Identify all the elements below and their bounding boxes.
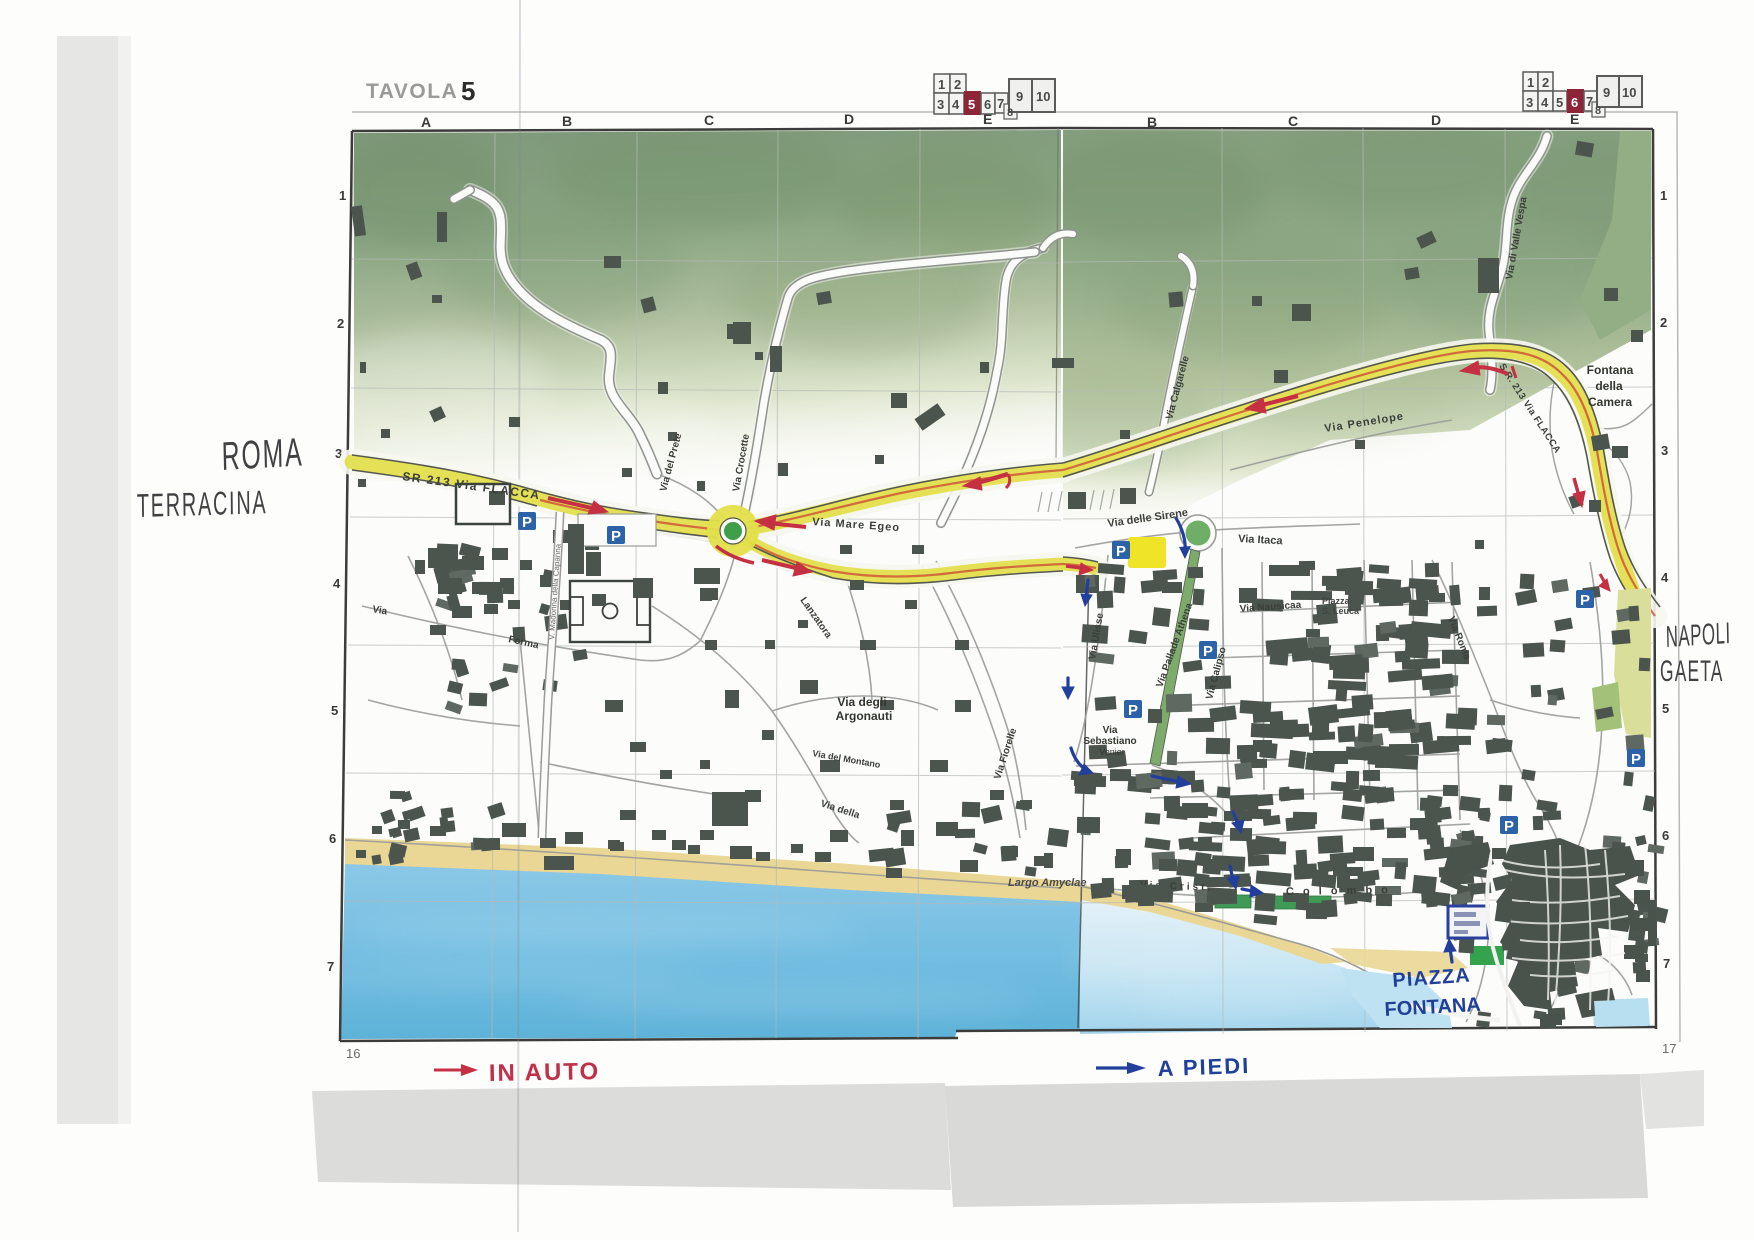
svg-text:5: 5 xyxy=(461,76,475,106)
svg-text:1: 1 xyxy=(1527,75,1534,90)
svg-text:7: 7 xyxy=(997,96,1004,111)
svg-text:Via: Via xyxy=(1103,725,1118,736)
svg-text:TAVOLA: TAVOLA xyxy=(366,80,458,103)
svg-text:1: 1 xyxy=(1660,188,1667,203)
svg-text:2: 2 xyxy=(954,77,961,92)
svg-text:6: 6 xyxy=(1662,828,1669,843)
svg-text:7: 7 xyxy=(1663,956,1670,971)
svg-text:7: 7 xyxy=(1586,94,1593,109)
svg-text:9: 9 xyxy=(1603,85,1610,100)
svg-text:5: 5 xyxy=(1556,95,1563,110)
svg-text:5: 5 xyxy=(1662,701,1669,716)
svg-text:6: 6 xyxy=(329,831,336,846)
svg-text:2: 2 xyxy=(337,316,344,331)
svg-text:5: 5 xyxy=(968,97,975,112)
svg-text:A: A xyxy=(421,114,431,130)
svg-text:Sebastiano: Sebastiano xyxy=(1083,736,1136,747)
svg-text:Camera: Camera xyxy=(1588,395,1632,409)
svg-text:4: 4 xyxy=(1541,95,1549,110)
svg-text:6: 6 xyxy=(1571,95,1578,110)
svg-text:2: 2 xyxy=(1542,75,1549,90)
svg-text:Piazza: Piazza xyxy=(1322,596,1351,606)
svg-text:P: P xyxy=(522,514,532,531)
svg-text:C o l o m b o: C o l o m b o xyxy=(1286,884,1391,898)
svg-text:16: 16 xyxy=(346,1046,360,1061)
svg-text:1: 1 xyxy=(938,77,945,92)
svg-text:7: 7 xyxy=(327,959,334,974)
svg-text:8: 8 xyxy=(1007,107,1013,119)
svg-text:Argonauti: Argonauti xyxy=(836,709,893,723)
svg-text:C: C xyxy=(1288,113,1298,129)
svg-text:A PIEDI: A PIEDI xyxy=(1157,1053,1250,1081)
svg-text:B: B xyxy=(1147,114,1157,130)
svg-text:9: 9 xyxy=(1016,89,1023,104)
svg-text:3: 3 xyxy=(1526,95,1533,110)
svg-text:P: P xyxy=(1580,592,1590,609)
svg-text:P: P xyxy=(1504,818,1514,835)
svg-text:D: D xyxy=(844,111,854,127)
svg-text:3: 3 xyxy=(1661,443,1668,458)
svg-text:P: P xyxy=(1631,751,1641,768)
svg-text:GAETA: GAETA xyxy=(1660,655,1723,688)
svg-text:4: 4 xyxy=(333,576,341,591)
svg-text:C: C xyxy=(704,112,714,128)
svg-text:8: 8 xyxy=(1595,105,1601,117)
svg-text:5: 5 xyxy=(331,703,338,718)
svg-text:ROMA: ROMA xyxy=(221,431,304,480)
svg-text:TERRACINA: TERRACINA xyxy=(137,483,268,524)
svg-text:6: 6 xyxy=(984,97,991,112)
svg-text:1: 1 xyxy=(339,188,346,203)
svg-text:E: E xyxy=(1570,111,1579,127)
svg-text:4: 4 xyxy=(952,97,960,112)
svg-text:della: della xyxy=(1595,379,1623,393)
svg-text:Fontana: Fontana xyxy=(1587,363,1634,377)
svg-text:P: P xyxy=(1203,643,1213,660)
svg-text:17: 17 xyxy=(1662,1041,1676,1056)
svg-text:3: 3 xyxy=(937,97,944,112)
svg-text:P: P xyxy=(611,528,621,545)
svg-text:D: D xyxy=(1431,112,1441,128)
svg-text:B: B xyxy=(562,113,572,129)
svg-text:S. Leuca: S. Leuca xyxy=(1322,606,1360,616)
svg-text:4: 4 xyxy=(1661,570,1669,585)
svg-text:Via degli: Via degli xyxy=(837,695,886,709)
svg-text:IN AUTO: IN AUTO xyxy=(489,1058,601,1087)
svg-text:NAPOLI: NAPOLI xyxy=(1665,617,1731,654)
svg-text:Venier: Venier xyxy=(1099,747,1125,757)
svg-text:10: 10 xyxy=(1036,89,1050,104)
svg-text:Via Itaca: Via Itaca xyxy=(1238,533,1284,547)
svg-text:10: 10 xyxy=(1622,85,1636,100)
svg-text:P: P xyxy=(1116,543,1126,560)
svg-text:2: 2 xyxy=(1660,315,1667,330)
svg-text:Largo Amyclae: Largo Amyclae xyxy=(1008,877,1086,889)
svg-text:P: P xyxy=(1128,702,1138,719)
